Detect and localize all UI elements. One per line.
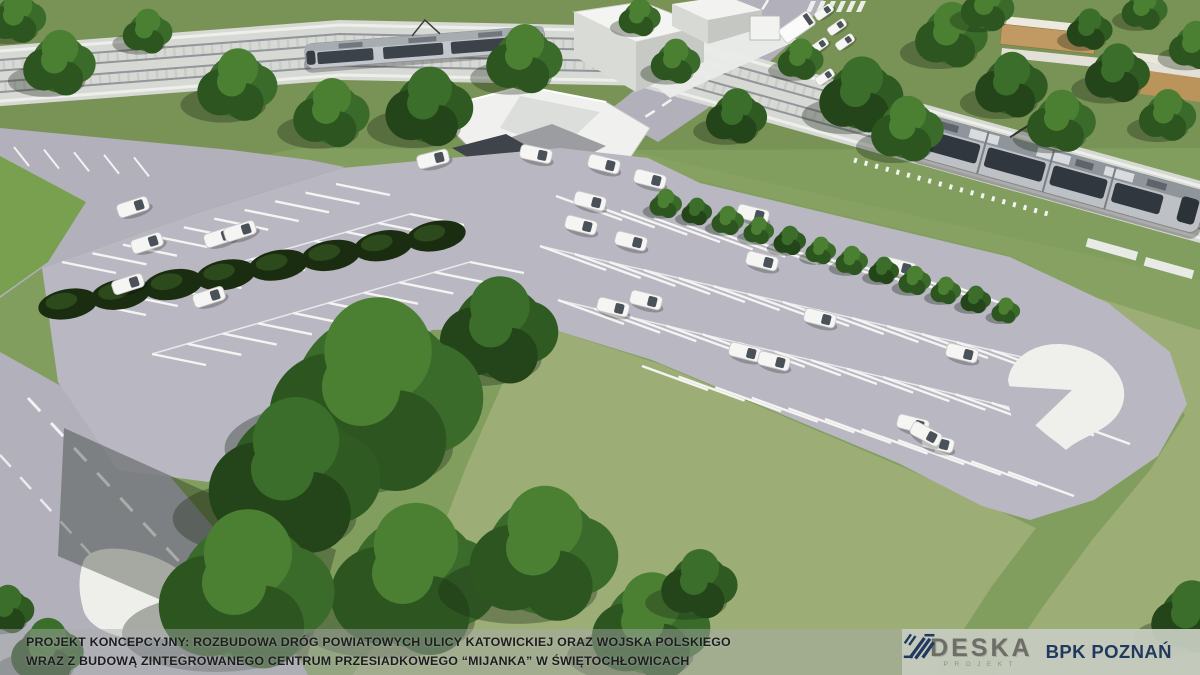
canopy <box>720 213 732 225</box>
canopy <box>840 76 871 107</box>
deska-title: DESKA <box>930 636 1033 661</box>
canopy <box>658 196 670 208</box>
canopy <box>813 244 824 255</box>
canopy <box>1171 599 1200 628</box>
canopy <box>506 521 561 576</box>
tram-cab <box>306 50 316 65</box>
canopy <box>993 69 1020 96</box>
canopy <box>907 273 919 285</box>
canopy <box>1044 106 1069 131</box>
site-render <box>0 0 1200 675</box>
canopy <box>782 233 794 245</box>
canopy <box>372 542 434 604</box>
canopy <box>663 50 681 68</box>
canopy <box>322 348 400 426</box>
logo-panel: DESKA PROJEKT BPK POZNAŃ <box>902 629 1200 675</box>
canopy <box>876 264 887 275</box>
canopy <box>407 87 439 119</box>
canopy <box>135 20 153 38</box>
canopy <box>1153 103 1174 124</box>
canopy <box>999 304 1010 315</box>
caption-line-1: PROJEKT KONCEPCYJNY: ROZBUDOWA DRÓG POWI… <box>26 633 902 652</box>
canopy <box>505 42 533 70</box>
caption-bar: PROJEKT KONCEPCYJNY: ROZBUDOWA DRÓG POWI… <box>0 629 902 675</box>
canopy <box>968 293 979 304</box>
canopy <box>689 205 700 216</box>
canopy <box>202 551 266 615</box>
bpk-title: BPK POZNAŃ <box>1046 641 1172 663</box>
bpk-glyph-icon <box>902 629 938 663</box>
canopy <box>789 49 806 66</box>
canopy <box>844 253 856 265</box>
canopy <box>469 304 512 347</box>
canopy <box>629 8 644 23</box>
canopy <box>217 67 246 96</box>
canopy <box>889 113 916 140</box>
canopy <box>41 47 68 74</box>
bus-shelter <box>750 16 780 40</box>
canopy <box>938 284 949 295</box>
canopy <box>312 96 340 124</box>
canopy <box>3 5 24 26</box>
caption-line-2: WRAZ Z BUDOWĄ ZINTEGROWANEGO CENTRUM PRZ… <box>26 652 902 671</box>
deska-logo: DESKA PROJEKT <box>930 636 1033 669</box>
canopy <box>1078 19 1095 36</box>
canopy <box>680 567 708 595</box>
canopy <box>1101 59 1125 83</box>
canopy <box>751 224 762 235</box>
bpk-logo: BPK POZNAŃ <box>1046 641 1172 663</box>
canopy <box>251 438 314 501</box>
viewport: PROJEKT KONCEPCYJNY: ROZBUDOWA DRÓG POWI… <box>0 0 1200 675</box>
deska-subtitle: PROJEKT <box>944 662 1019 669</box>
canopy <box>721 103 743 125</box>
